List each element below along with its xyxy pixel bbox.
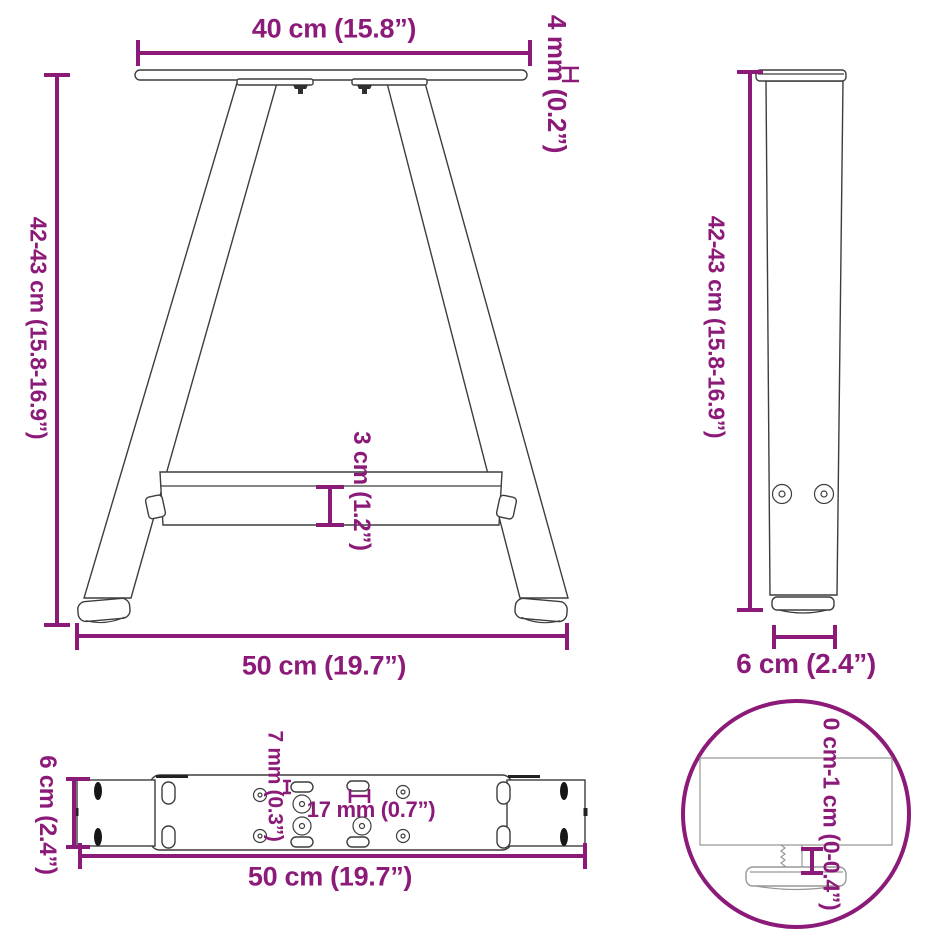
dimension-diagram: 40 cm (15.8”) 4 mm (0.2”) 42-43 cm (15.8… — [0, 0, 947, 947]
dim-top-width — [138, 40, 530, 66]
detail-circle — [683, 701, 909, 927]
label-front-height: 42-43 cm (15.8-16.9”) — [27, 217, 50, 440]
front-right-foot — [514, 598, 568, 625]
plate-view-drawing — [66, 775, 588, 869]
crossbar-right-clip — [496, 495, 517, 520]
cap-hole — [560, 782, 568, 800]
dim-side-height — [737, 72, 763, 610]
side-leg-cap — [756, 70, 846, 81]
label-crossbar-height: 3 cm (1.2”) — [349, 431, 373, 550]
top-left-tab — [237, 79, 313, 85]
detail-leg-bottom — [700, 758, 892, 845]
detail-thread — [781, 845, 802, 868]
cap-hole — [94, 828, 102, 846]
cap-hole — [560, 828, 568, 846]
cap-hole — [94, 782, 102, 800]
front-left-foot — [77, 598, 131, 625]
label-front-plate-thickness: 4 mm (0.2”) — [544, 15, 570, 153]
dim-side-foot-width — [774, 625, 835, 649]
label-front-top-width: 40 cm (15.8”) — [252, 16, 416, 43]
top-right-tab — [352, 79, 427, 85]
label-plate-small-hole: 7 mm (0.3”) — [265, 730, 286, 841]
side-view-drawing — [737, 70, 846, 649]
label-plate-length: 50 cm (19.7”) — [248, 864, 412, 891]
diagram-canvas — [0, 0, 947, 947]
left-screw — [293, 85, 308, 94]
plate-right-cap — [507, 780, 585, 846]
dim-bottom-width — [77, 623, 567, 650]
side-leg-body — [766, 81, 843, 595]
top-plate — [135, 70, 527, 80]
label-front-bottom-width: 50 cm (19.7”) — [242, 653, 406, 680]
label-side-foot-width: 6 cm (2.4”) — [736, 650, 876, 678]
plate-slot — [497, 826, 510, 848]
plate-slot — [497, 782, 510, 804]
front-view-drawing — [44, 40, 579, 650]
plate-slot — [162, 826, 175, 848]
label-plate-depth: 6 cm (2.4”) — [35, 755, 59, 874]
plate-slot — [162, 782, 175, 804]
detail-view-drawing — [683, 701, 909, 927]
crossbar-left-clip — [145, 494, 166, 519]
label-side-height: 42-43 cm (15.8-16.9”) — [705, 216, 728, 439]
label-plate-large-hole: 17 mm (0.7”) — [307, 799, 435, 821]
label-height-adjustment: 0 cm-1 cm (0-0.4”) — [820, 718, 843, 911]
side-foot — [772, 597, 834, 610]
right-screw — [357, 85, 372, 94]
plate-left-cap — [77, 780, 155, 846]
